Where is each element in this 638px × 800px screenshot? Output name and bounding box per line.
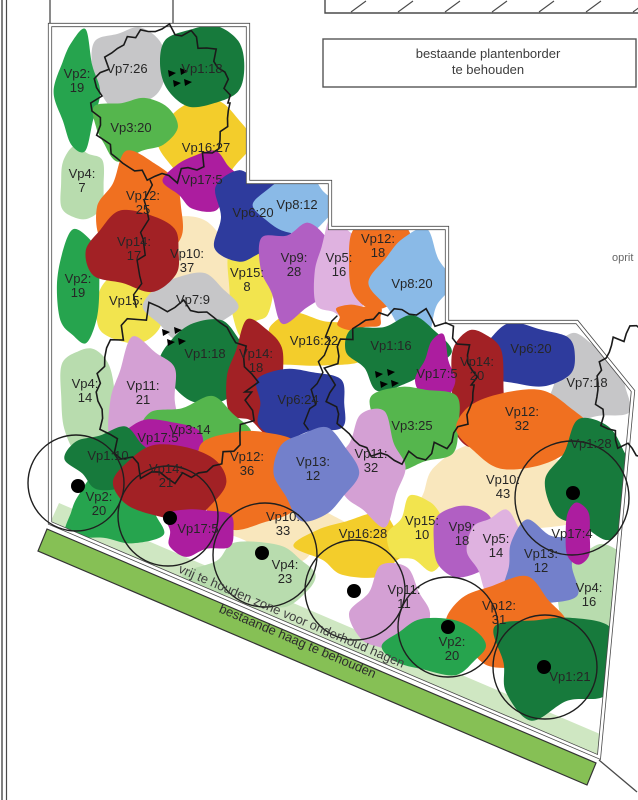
note-box-line2: te behouden <box>452 62 524 77</box>
plant-area-label: 12 <box>534 560 548 575</box>
tree-center-dot <box>347 584 361 598</box>
plant-area-label: Vp15: <box>405 513 439 528</box>
plant-area-label: 14 <box>78 390 92 405</box>
plant-area-label: Vp11: <box>387 582 420 597</box>
plant-area-label: Vp1:18 <box>181 61 222 76</box>
plant-area-label: Vp1:10 <box>87 448 128 463</box>
plant-area-label: Vp17:5 <box>416 366 457 381</box>
plant-area-label: Vp11: <box>126 378 159 393</box>
plant-area-label: Vp1:18 <box>184 346 225 361</box>
plant-area-label: Vp7:18 <box>566 375 607 390</box>
plant-area-label: 32 <box>515 418 529 433</box>
hatched-structure-strip <box>325 0 638 13</box>
plant-area-label: 43 <box>496 486 510 501</box>
hatch-line <box>351 1 366 12</box>
plant-area-label: 21 <box>136 392 150 407</box>
plant-area-label: Vp3:20 <box>110 120 151 135</box>
property-boundary-left <box>2 0 7 800</box>
tree-center-dot <box>566 486 580 500</box>
plant-area-label: 17 <box>127 248 141 263</box>
plant-area-label: 32 <box>364 460 378 475</box>
plant-area-label: 16 <box>582 594 596 609</box>
plant-area-label: Vp9: <box>281 250 308 265</box>
plant-area-label: 19 <box>70 80 84 95</box>
plant-area-label: Vp16:28 <box>339 526 387 541</box>
hatch-line <box>445 1 460 12</box>
plant-area-label: Vp3:25 <box>391 418 432 433</box>
tree-center-dot <box>441 620 455 634</box>
plant-area-label: Vp1:28 <box>570 436 611 451</box>
plant-area-label: 20 <box>92 503 106 518</box>
plant-area-label: Vp12: <box>505 404 539 419</box>
tree-center-dot <box>255 546 269 560</box>
plant-area-label: 20 <box>470 368 484 383</box>
plant-area-label: Vp4: <box>576 580 603 595</box>
plant-area-label: Vp1:21 <box>549 669 590 684</box>
plant-area-label: Vp14: <box>117 234 151 249</box>
plant-area-label: Vp13: <box>296 454 330 469</box>
corner-extension-line <box>599 760 637 792</box>
plant-area-label: Vp6:20 <box>510 341 551 356</box>
plant-area-label: 28 <box>287 264 301 279</box>
hatch-line <box>586 1 601 12</box>
plant-area-label: Vp5: <box>483 531 510 546</box>
plant-area-label: 8 <box>243 279 250 294</box>
plant-area-label: 36 <box>240 463 254 478</box>
plant-area-label: Vp10: <box>266 509 300 524</box>
plant-area-label: Vp8:12 <box>276 197 317 212</box>
plant-area-label: Vp15: <box>109 293 143 308</box>
plant-area-label: Vp2: <box>86 489 113 504</box>
plant-area-label: Vp4: <box>272 557 299 572</box>
plant-area-label: Vp17:5 <box>181 172 222 187</box>
plant-area-label: Vp14: <box>239 346 273 361</box>
plant-area-label: 16 <box>332 264 346 279</box>
plant-area-label: Vp2: <box>65 271 92 286</box>
tree-center-dot <box>163 511 177 525</box>
plant-area-label: Vp9: <box>449 519 476 534</box>
hatch-line <box>633 1 638 12</box>
planting-plan-canvas: bestaande plantenborder te behouden opri… <box>0 0 638 800</box>
plant-area-label: Vp10: <box>486 472 520 487</box>
plant-area-label: Vp15: <box>230 265 264 280</box>
plant-area-label: Vp12: <box>482 598 516 613</box>
plant-area-label: 33 <box>276 523 290 538</box>
plant-area-label: 31 <box>492 612 506 627</box>
plant-area-label: Vp17:4 <box>551 526 592 541</box>
plant-area-label: 10 <box>415 527 429 542</box>
plant-area-label: Vp4: <box>72 376 99 391</box>
plant-area-label: 14 <box>489 545 503 560</box>
plant-area-label: Vp8:20 <box>391 276 432 291</box>
plant-area-label: 21 <box>159 475 173 490</box>
hatch-line <box>398 1 413 12</box>
wall-lines-top-left <box>50 0 173 25</box>
plant-area-label: Vp1:16 <box>370 338 411 353</box>
plant-area-label: 12 <box>306 468 320 483</box>
plant-area-label: 25 <box>136 202 150 217</box>
plant-area-label: 11 <box>397 596 411 611</box>
plant-area-label: Vp6:24 <box>277 392 318 407</box>
oprit-label: oprit <box>612 252 633 264</box>
plant-area-label: Vp12: <box>126 188 160 203</box>
plant-area-label: 37 <box>180 260 194 275</box>
plant-area-label: 18 <box>455 533 469 548</box>
plant-area-label: Vp12: <box>361 231 395 246</box>
plant-area-label: Vp12: <box>230 449 264 464</box>
hatch-line <box>539 1 554 12</box>
plant-area-label: Vp16:22 <box>290 333 338 348</box>
plant-area-label: Vp16:27 <box>182 140 230 155</box>
plant-area-label: Vp2: <box>64 66 91 81</box>
plant-area-label: 18 <box>249 360 263 375</box>
plant-area-label: Vp17:5 <box>177 521 218 536</box>
note-box-line1: bestaande plantenborder <box>416 46 561 61</box>
plant-area-label: Vp7:9 <box>176 292 210 307</box>
plant-area-label: 7 <box>78 180 85 195</box>
tree-center-dot <box>71 479 85 493</box>
plant-area-label: Vp10: <box>170 246 204 261</box>
plant-area-label: Vp14: <box>460 354 494 369</box>
plant-area-label: 23 <box>278 571 292 586</box>
plant-area-label: Vp11: <box>354 446 387 461</box>
plant-area-label: Vp6:20 <box>232 205 273 220</box>
plant-area-label: Vp13: <box>524 546 558 561</box>
plant-area-label: Vp5: <box>326 250 353 265</box>
plant-area-label: Vp17:5 <box>137 430 178 445</box>
plant-area-label: Vp14: <box>149 461 183 476</box>
plant-area-label: 20 <box>445 648 459 663</box>
plant-area-label: Vp7:26 <box>106 61 147 76</box>
plant-area-label: 18 <box>371 245 385 260</box>
plant-area-label: Vp4: <box>69 166 96 181</box>
hatch-line <box>492 1 507 12</box>
plant-area-label: Vp2: <box>439 634 466 649</box>
plant-area-label: 19 <box>71 285 85 300</box>
existing-border-note-box: bestaande plantenborder te behouden <box>323 39 636 87</box>
